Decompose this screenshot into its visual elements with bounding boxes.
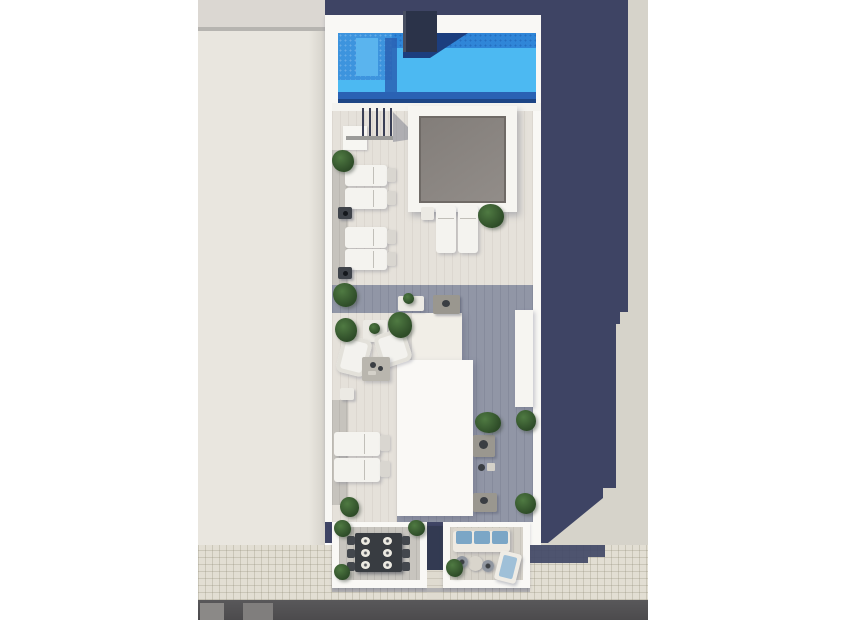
coffee-table <box>362 357 390 381</box>
tea-set-tray <box>368 371 376 375</box>
potted-plant <box>478 204 504 228</box>
bistro-table <box>468 556 483 571</box>
potted-plant <box>340 497 359 517</box>
dining-chair <box>402 562 410 571</box>
road-marking <box>243 603 273 620</box>
dining-chair <box>402 549 410 558</box>
railing-bar <box>346 136 393 140</box>
potted-plant <box>515 493 536 514</box>
dining-plate <box>361 537 370 545</box>
parapet-wall-segment <box>515 310 533 407</box>
potted-plant <box>408 520 425 536</box>
railing-post <box>376 108 378 138</box>
sofa-cushion <box>492 531 508 544</box>
pool-depth-line <box>385 38 397 92</box>
sofa-cushion <box>474 531 490 544</box>
counter-item <box>480 497 488 504</box>
lounger-side-table <box>387 230 396 244</box>
sun-lounger <box>345 188 387 209</box>
counter-item <box>487 463 495 471</box>
kettle-item <box>478 464 485 471</box>
entrance-path <box>427 570 443 600</box>
railing-post <box>383 108 385 138</box>
dining-chair <box>347 549 355 558</box>
stairwell-housing <box>397 360 473 516</box>
potted-plant <box>475 412 501 433</box>
dining-plate <box>361 561 370 569</box>
potted-plant <box>446 559 463 577</box>
sun-lounger <box>334 458 380 482</box>
sofa-cushion <box>456 531 472 544</box>
neighbor-roof-top-band <box>198 0 325 27</box>
potted-plant <box>334 520 351 537</box>
dining-plate <box>383 561 392 569</box>
lounger-side-table <box>380 461 390 477</box>
roof-structure-upper <box>412 313 462 363</box>
side-table-dark <box>338 267 352 279</box>
neighbor-roof <box>198 31 325 545</box>
sun-lounger <box>436 206 456 253</box>
potted-plant <box>333 283 357 307</box>
potted-plant <box>332 150 354 172</box>
skylight-glass <box>419 116 506 203</box>
dining-chair <box>347 536 355 545</box>
tea-set-item <box>370 362 376 368</box>
potted-plant <box>403 293 414 304</box>
lounger-side-table <box>387 191 396 205</box>
table-item <box>442 300 450 307</box>
grill-item <box>479 440 488 449</box>
railing-post <box>362 108 364 138</box>
potted-plant <box>516 410 536 431</box>
rooftop-render-scene <box>0 0 850 620</box>
dining-plate <box>383 549 392 557</box>
road-marking <box>200 603 224 620</box>
railing-post <box>390 108 392 138</box>
tea-set-item <box>378 366 383 371</box>
lounger-side-table <box>380 435 390 451</box>
chimney-block <box>403 11 437 52</box>
sun-lounger <box>345 227 387 248</box>
bistro-chair <box>482 560 494 572</box>
lounger-side-table <box>387 252 396 266</box>
potted-plant <box>334 564 350 580</box>
side-table-small <box>421 207 434 220</box>
potted-plant <box>335 318 357 342</box>
potted-plant <box>369 323 380 334</box>
entrance-passage <box>427 526 443 570</box>
dining-chair <box>402 536 410 545</box>
sun-lounger <box>334 432 380 456</box>
railing-post <box>369 108 371 138</box>
potted-plant <box>388 312 412 338</box>
sun-lounger <box>458 206 478 253</box>
terrace-wall-shadow <box>332 588 530 592</box>
side-table-small <box>340 388 354 400</box>
side-table-dark <box>338 207 352 219</box>
dining-plate <box>383 537 392 545</box>
pool-bench-step <box>356 38 378 76</box>
lounger-side-table <box>387 168 396 182</box>
dining-plate <box>361 549 370 557</box>
